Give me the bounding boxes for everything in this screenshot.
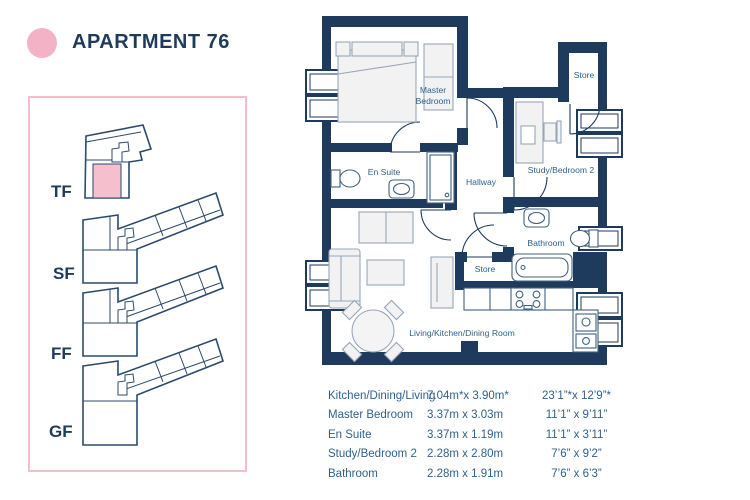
desk [516, 102, 543, 163]
tv-unit [431, 257, 453, 308]
dim-imperial: 23’1”*x 12’9”* [525, 390, 628, 402]
window [577, 110, 622, 132]
dim-room-name: Study/Bedroom 2 [328, 448, 427, 460]
floor-label-gf: GF [49, 422, 73, 442]
floor-label-sf: SF [53, 264, 75, 284]
bathtub [512, 254, 572, 281]
floor-outline-sf [83, 193, 223, 283]
shower [427, 152, 454, 203]
room-label-living: Living/Kitchen/Dining Room [409, 328, 515, 338]
dimensions-row: Kitchen/Dining/Living 7.04m*x 3.90m* 23’… [328, 386, 628, 406]
dim-room-name: Master Bedroom [328, 409, 427, 421]
room-label-study: Study/Bedroom 2 [528, 165, 595, 175]
sofa [329, 249, 360, 308]
door-master-bedroom [467, 98, 497, 128]
desk-chair [544, 121, 561, 143]
dining-table [342, 300, 403, 361]
kitchen-sink-counter [573, 310, 598, 352]
bed [336, 42, 418, 122]
window [577, 134, 622, 157]
dim-room-name: Kitchen/Dining/Living [328, 390, 427, 402]
room-label-master-1: Master [420, 85, 446, 95]
room-label-master-2: Bedroom [416, 96, 451, 106]
dimensions-row: Study/Bedroom 2 2.28m x 2.80m 7’6” x 9’2… [328, 445, 628, 465]
brand-dot-icon [27, 28, 57, 58]
floor-label-tf: TF [51, 182, 72, 202]
stove [511, 288, 545, 310]
floor-outline-tf [85, 125, 151, 198]
floor-selector-panel: TF SF FF GF [28, 96, 247, 472]
door-ensuite [390, 122, 420, 152]
room-label-ensuite: En Suite [368, 167, 401, 177]
dim-imperial: 11’1” x 9’11” [525, 409, 628, 421]
door-bathroom [474, 213, 507, 246]
dim-metric: 2.28m x 2.80m [427, 448, 525, 460]
dimensions-row: En Suite 3.37m x 1.19m 11’1” x 3’11” [328, 425, 628, 445]
dim-metric: 3.37m x 3.03m [427, 409, 525, 421]
dimensions-row: Bathroom 2.28m x 1.91m 7’6” x 6’3” [328, 464, 628, 484]
ensuite-toilet [331, 170, 360, 187]
room-label-store-top: Store [574, 70, 595, 80]
dim-metric: 7.04m*x 3.90m* [427, 390, 525, 402]
dim-metric: 2.28m x 1.91m [427, 468, 525, 480]
dim-imperial: 7’6” x 6’3” [525, 468, 628, 480]
dim-room-name: En Suite [328, 429, 427, 441]
highlighted-unit [93, 164, 121, 198]
bathroom-sink [524, 209, 549, 227]
apartment-floorplan: Master Bedroom En Suite Hallway Store St… [300, 8, 635, 380]
room-label-store-mid: Store [475, 264, 496, 274]
cabinet [359, 212, 413, 243]
dimensions-table: Kitchen/Dining/Living 7.04m*x 3.90m* 23’… [328, 386, 628, 484]
dim-room-name: Bathroom [328, 468, 427, 480]
room-label-hallway: Hallway [466, 177, 497, 187]
page-title: APARTMENT 76 [72, 31, 230, 54]
floor-label-ff: FF [51, 344, 72, 364]
dim-imperial: 11’1” x 3’11” [525, 429, 628, 441]
dimensions-row: Master Bedroom 3.37m x 3.03m 11’1” x 9’1… [328, 406, 628, 426]
ensuite-sink [389, 180, 414, 198]
coffee-table [367, 260, 404, 285]
room-label-bathroom: Bathroom [527, 238, 564, 248]
dim-metric: 3.37m x 1.19m [427, 429, 525, 441]
bathroom-toilet [571, 230, 599, 247]
door-living [421, 210, 451, 240]
dim-imperial: 7’6” x 9’2” [525, 448, 628, 460]
